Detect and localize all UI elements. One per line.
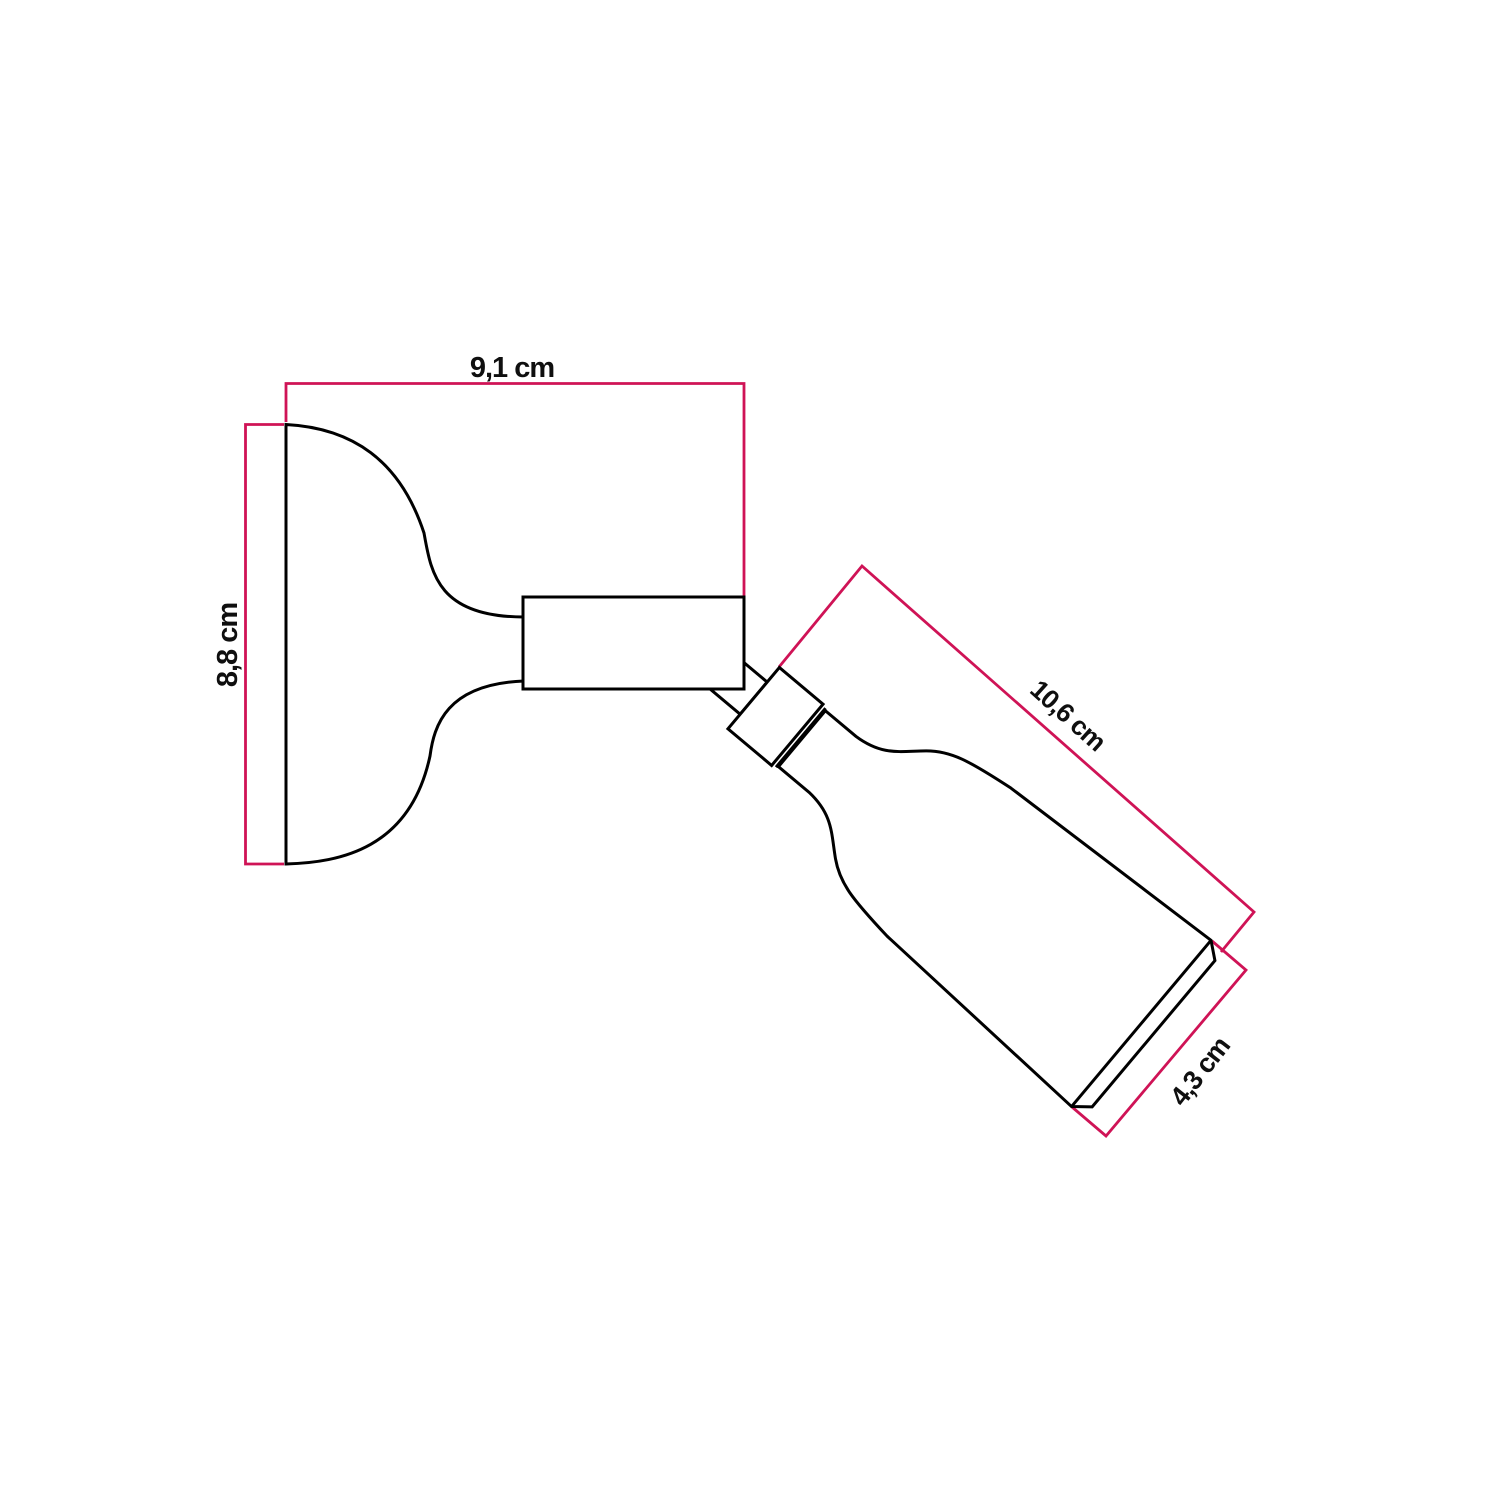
svg-text:9,1 cm: 9,1 cm [470,352,554,384]
svg-text:8,8 cm: 8,8 cm [212,603,244,687]
